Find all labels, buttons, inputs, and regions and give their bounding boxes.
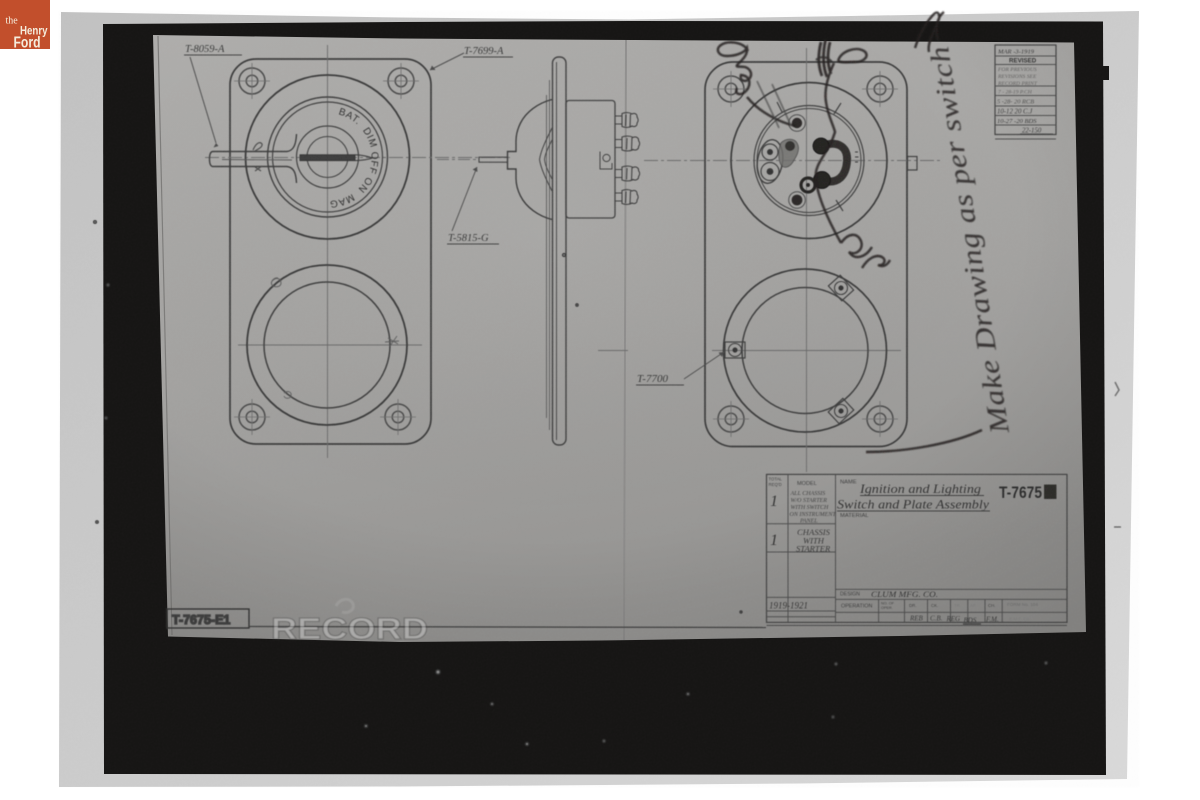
svg-text:Ford: Ford bbox=[14, 35, 41, 52]
svg-text:the: the bbox=[6, 16, 19, 27]
